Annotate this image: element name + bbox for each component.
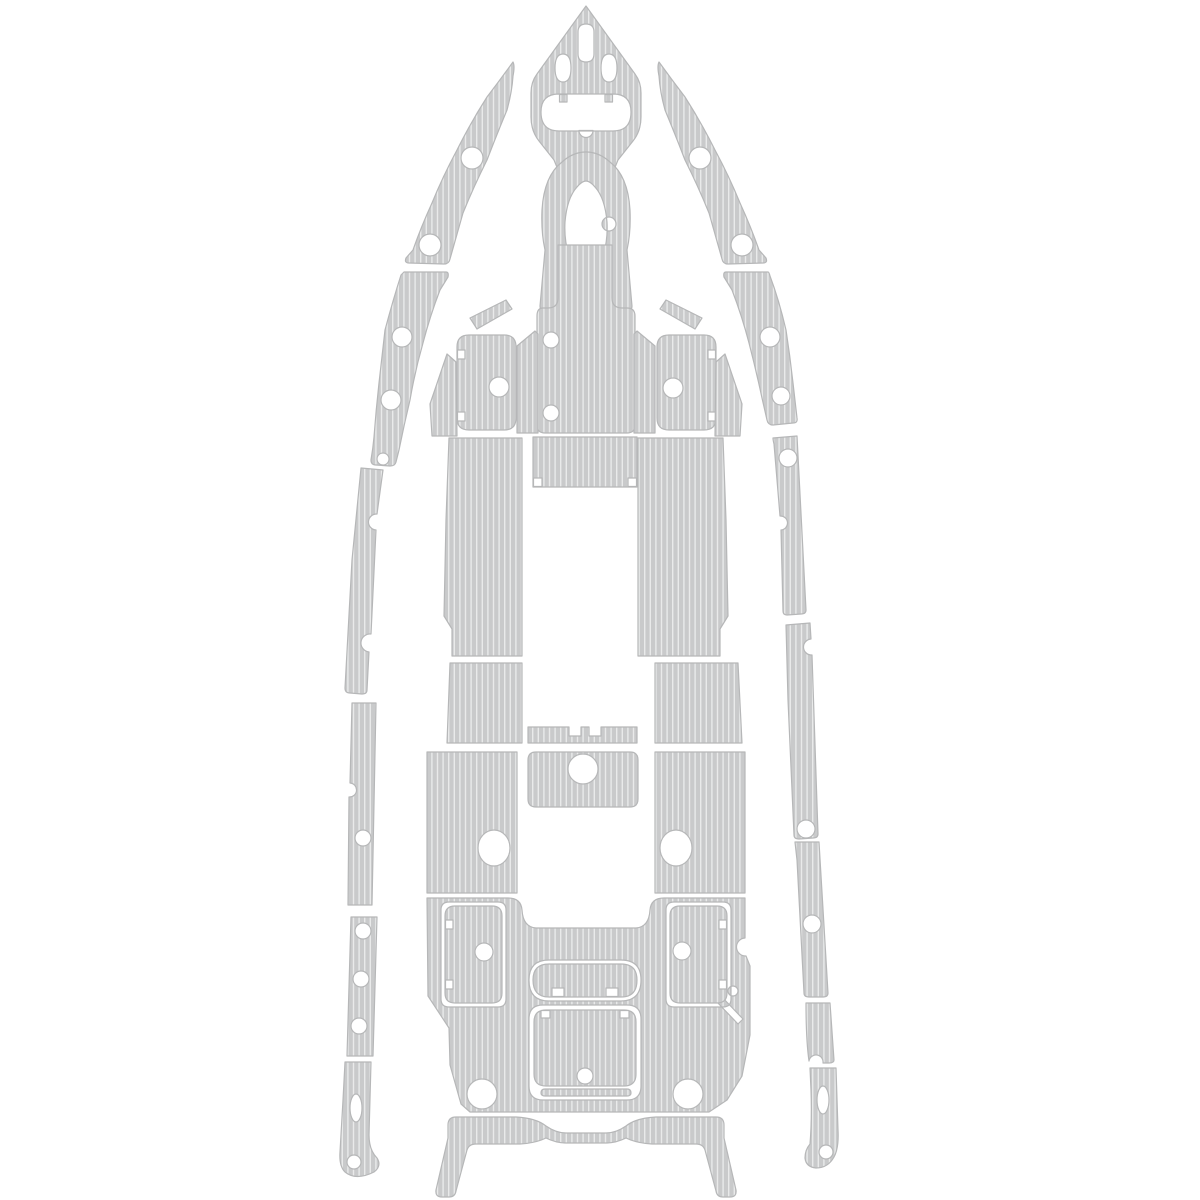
fwd-floor-strip-starboard: [634, 331, 655, 433]
cockpit-floor-starboard: [638, 438, 728, 656]
aft-floor-port: [427, 752, 517, 893]
cockpit-floor-port: [444, 438, 522, 656]
rail-starboard-4: [806, 1003, 834, 1063]
fwd-floor-strip-port: [517, 331, 538, 433]
kit-svg: [0, 0, 1200, 1200]
aft-threshold-strip: [541, 1089, 631, 1096]
step-pad: [528, 727, 637, 743]
aft-hatch-pad-port: [445, 906, 502, 1003]
aft-floor-starboard: [655, 752, 745, 893]
mid-floor-port: [447, 663, 522, 743]
cockpit-floor-center: [533, 437, 637, 487]
boat-decking-kit-illustration: [0, 0, 1200, 1200]
rail-port-2: [348, 703, 376, 905]
aft-pill-pad: [533, 964, 637, 997]
mid-floor-starboard: [655, 663, 742, 743]
